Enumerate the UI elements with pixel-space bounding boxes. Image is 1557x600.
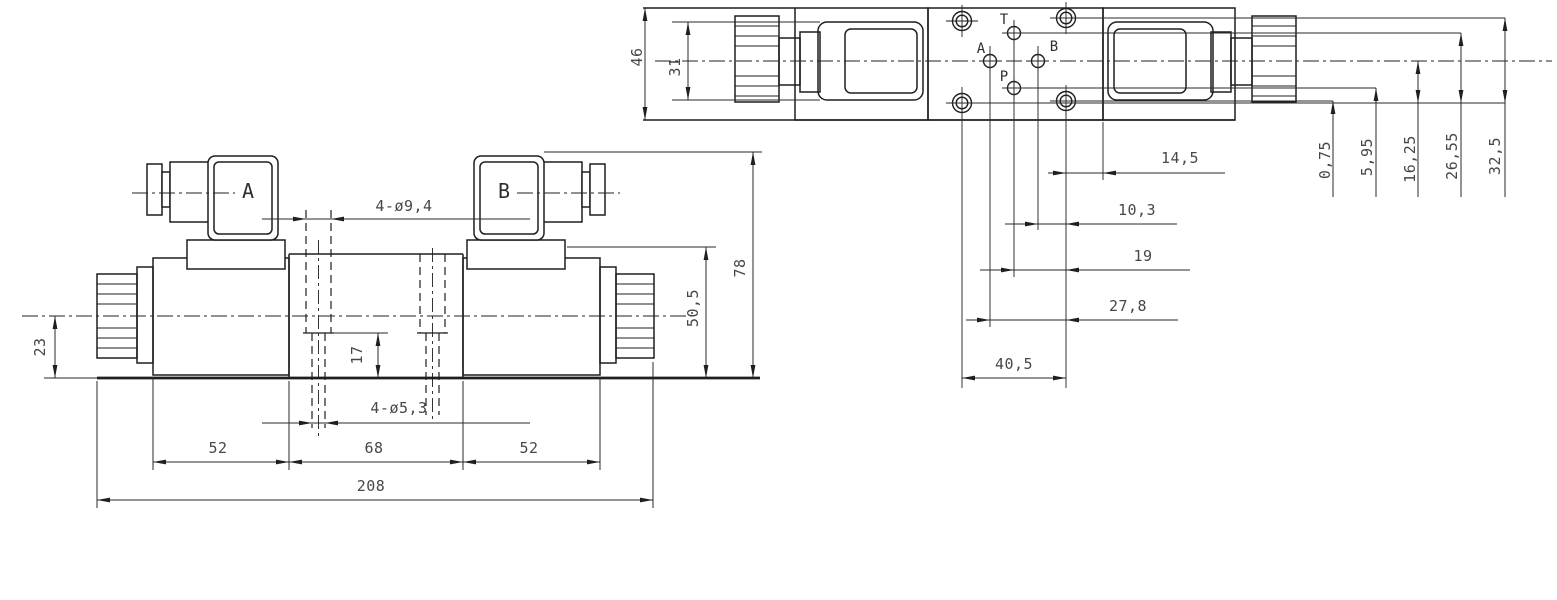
dim-label-v-port-p: 5,95 xyxy=(1358,138,1376,176)
dim-label-hole-spacing: 40,5 xyxy=(995,355,1033,373)
dim-label-solenoid-height: 50,5 xyxy=(684,289,702,327)
dim-label-mount-holes-large: 4-ø9,4 xyxy=(375,197,432,215)
front-view xyxy=(97,156,760,378)
dim-label-overall-length: 208 xyxy=(357,477,386,495)
connector-b-label: B xyxy=(498,179,510,203)
dim-label-v-ports-ab: 16,25 xyxy=(1401,135,1419,183)
drawing-linework xyxy=(0,0,1557,600)
dim-label-mount-holes-small: 4-ø5,3 xyxy=(370,399,427,417)
top-view-dimensions xyxy=(645,8,1505,388)
dim-label-edge-to-holes: 14,5 xyxy=(1161,149,1199,167)
dim-label-solenoid-width: 31 xyxy=(666,57,684,76)
dim-label-right-solenoid: 52 xyxy=(519,439,538,457)
dim-label-valve-body: 68 xyxy=(364,439,383,457)
dim-label-port-b: 10,3 xyxy=(1118,201,1156,219)
dim-label-v-hole-offset: 0,75 xyxy=(1316,141,1334,179)
dim-label-overall-width: 46 xyxy=(628,47,646,66)
dim-label-hole-depth: 17 xyxy=(348,345,366,364)
valve-dimension-drawing: A B 23 4-ø9,4 17 4-ø5,3 52 68 52 208 50,… xyxy=(0,0,1557,600)
port-label-p: P xyxy=(1000,69,1008,85)
port-label-b: B xyxy=(1050,39,1058,55)
dim-label-v-holes-top: 32,5 xyxy=(1486,137,1504,175)
dim-label-left-solenoid: 52 xyxy=(208,439,227,457)
connector-a-label: A xyxy=(242,179,254,203)
dim-label-body-to-base: 23 xyxy=(31,337,49,356)
dim-label-ports-tp: 19 xyxy=(1133,247,1152,265)
dim-label-v-port-t: 26,55 xyxy=(1443,132,1461,180)
dim-label-overall-height: 78 xyxy=(731,258,749,277)
dim-label-port-a: 27,8 xyxy=(1109,297,1147,315)
port-label-t: T xyxy=(1000,12,1008,28)
port-label-a: A xyxy=(977,41,985,57)
